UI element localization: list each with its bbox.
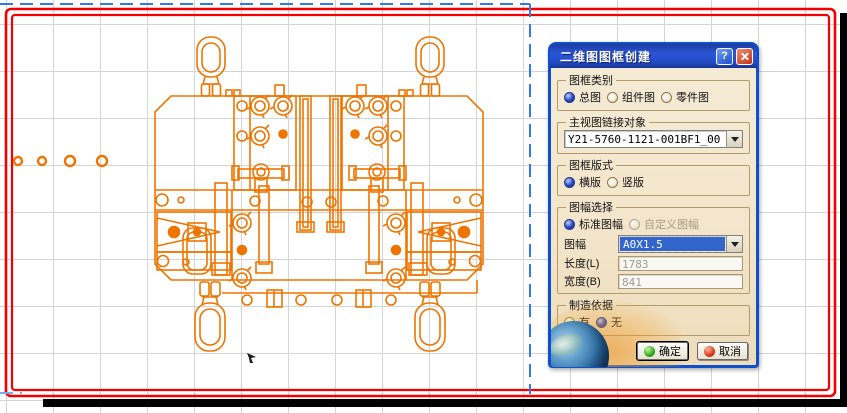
radio-label: 横版 — [579, 174, 601, 190]
group-frame-layout: 图框版式 横版 竖版 — [557, 157, 750, 196]
radio-standard-sheet[interactable]: 标准图幅 — [564, 216, 623, 232]
radio-component-drawing[interactable]: 组件图 — [607, 89, 655, 105]
frame-creation-dialog: 二维图图框创建 ? 图框类别 总图 组件图 — [548, 42, 759, 368]
radio-label: 竖版 — [622, 174, 644, 190]
clamp-left — [232, 164, 289, 192]
radio-label: 标准图幅 — [579, 216, 623, 232]
cancel-label: 取消 — [719, 343, 741, 359]
frame-preview-dashed — [0, 4, 530, 394]
ok-button[interactable]: 确定 — [637, 342, 688, 360]
group-frame-type: 图框类别 总图 组件图 零件图 — [557, 72, 750, 111]
sheet-size-combobox[interactable]: A0X1.5 — [618, 235, 743, 253]
reference-holes — [14, 156, 107, 166]
radio-dot — [607, 92, 618, 103]
radio-dot — [564, 219, 575, 230]
chevron-down-icon — [731, 137, 739, 142]
clamp-right — [349, 164, 406, 192]
sheet-size-value: A0X1.5 — [620, 237, 725, 251]
eyebolt-bottom-left — [195, 282, 225, 351]
ok-label: 确定 — [659, 343, 681, 359]
width-field: 841 — [618, 274, 743, 289]
radio-general-drawing[interactable]: 总图 — [564, 89, 601, 105]
radio-label: 自定义图幅 — [644, 216, 699, 232]
radio-dot — [661, 92, 672, 103]
dialog-buttons: 确定 取消 — [637, 342, 748, 360]
dialog-titlebar[interactable]: 二维图图框创建 ? — [550, 44, 757, 68]
mouse-cursor — [247, 353, 256, 363]
radio-dot — [564, 177, 575, 188]
cancel-sphere-icon — [704, 346, 715, 357]
radio-label: 总图 — [579, 89, 601, 105]
radio-landscape[interactable]: 横版 — [564, 174, 601, 190]
cad-viewport: 二维图图框创建 ? 图框类别 总图 组件图 — [0, 0, 847, 413]
eyebolt-top-right — [416, 37, 444, 96]
width-label: 宽度(B) — [564, 273, 614, 289]
dialog-title: 二维图图框创建 — [560, 48, 713, 65]
cancel-button[interactable]: 取消 — [697, 342, 748, 360]
radio-dot — [564, 92, 575, 103]
help-icon: ? — [721, 50, 728, 62]
main-view-link-combobox[interactable]: Y21-5760-1121-001BF1_00 — [564, 130, 743, 148]
group-sheet-selection: 图幅选择 标准图幅 自定义图幅 图幅 A0X1.5 — [557, 199, 750, 294]
group-main-view-link-label: 主视图链接对象 — [566, 114, 649, 130]
radio-portrait[interactable]: 竖版 — [607, 174, 644, 190]
sheet-size-label: 图幅 — [564, 236, 614, 252]
group-frame-type-label: 图框类别 — [566, 72, 616, 88]
length-label: 长度(L) — [564, 255, 614, 271]
close-icon — [740, 52, 749, 61]
group-frame-layout-label: 图框版式 — [566, 157, 616, 173]
close-button[interactable] — [736, 48, 753, 65]
radio-custom-sheet: 自定义图幅 — [629, 216, 699, 232]
help-button[interactable]: ? — [716, 48, 733, 65]
radio-dot — [629, 219, 640, 230]
eyebolt-top-left — [197, 37, 225, 96]
group-sheet-selection-label: 图幅选择 — [566, 199, 616, 215]
main-view-link-value: Y21-5760-1121-001BF1_00 — [565, 131, 726, 147]
ok-sphere-icon — [644, 346, 655, 357]
dropdown-button[interactable] — [726, 236, 742, 252]
radio-part-drawing[interactable]: 零件图 — [661, 89, 709, 105]
length-field: 1783 — [618, 256, 743, 271]
dialog-body: 图框类别 总图 组件图 零件图 主视 — [551, 68, 756, 367]
radio-label: 零件图 — [676, 89, 709, 105]
radio-dot — [607, 177, 618, 188]
group-main-view-link: 主视图链接对象 Y21-5760-1121-001BF1_00 — [557, 114, 750, 154]
fixture-drawing[interactable] — [14, 37, 483, 351]
radio-label: 组件图 — [622, 89, 655, 105]
chevron-down-icon — [731, 242, 739, 247]
dropdown-button[interactable] — [726, 131, 742, 147]
